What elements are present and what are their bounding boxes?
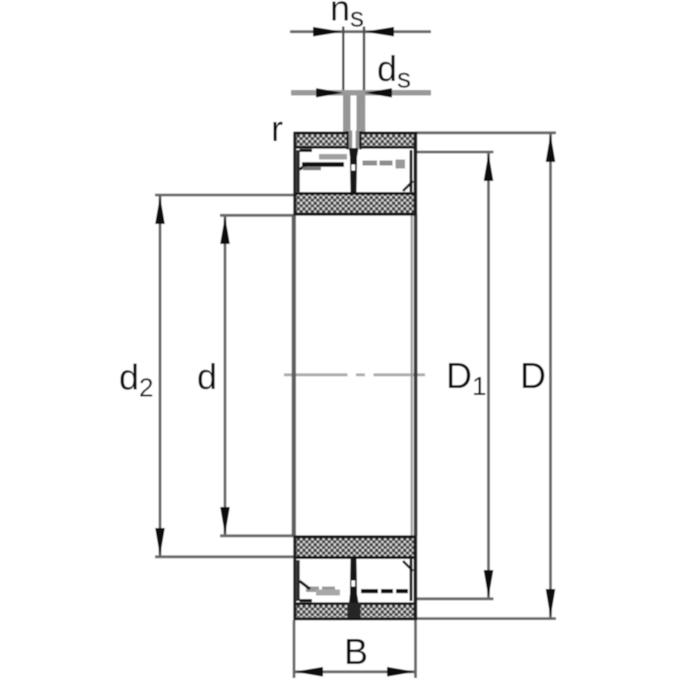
svg-text:D: D [520, 355, 546, 396]
svg-text:r: r [271, 108, 283, 149]
svg-text:B: B [344, 631, 368, 672]
svg-text:ns: ns [330, 0, 364, 33]
svg-text:d: d [197, 356, 217, 397]
